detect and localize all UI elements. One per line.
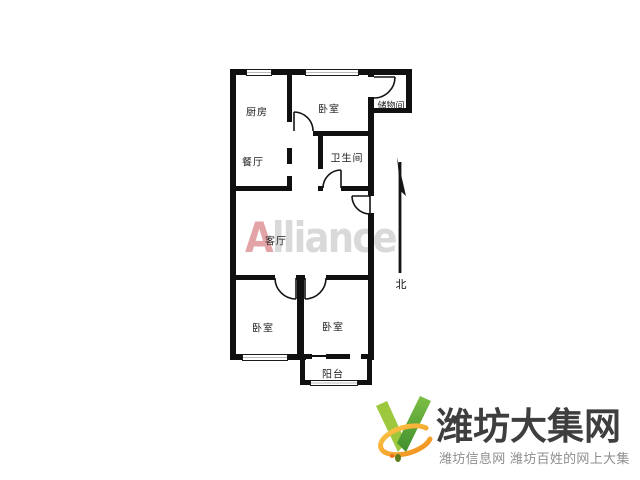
room-label-bedroom-southwest: 卧室 [252, 320, 274, 335]
room-label-bathroom: 卫生间 [331, 150, 364, 165]
door-swing-bedroom-southeast [305, 278, 326, 299]
door-swing-entry [352, 196, 370, 214]
page: Alliance [0, 0, 640, 480]
north-label: 北 [396, 276, 407, 292]
room-label-kitchen: 厨房 [246, 104, 268, 119]
door-swing-bedroom-southwest [275, 278, 296, 299]
door-swing-bathroom [323, 170, 341, 188]
room-label-bedroom-north: 卧室 [318, 101, 340, 116]
room-label-dining: 餐厅 [242, 154, 264, 169]
door-swing-bedroom-north [294, 112, 313, 131]
v-checkmark-icon [374, 394, 438, 468]
room-label-balcony: 阳台 [322, 366, 344, 381]
north-arrow-icon [397, 157, 406, 273]
room-label-living-room: 客厅 [265, 233, 287, 248]
site-title: 潍坊大集网 [436, 396, 621, 450]
door-swing-storage [374, 77, 395, 98]
room-label-storage: 储物间 [377, 99, 404, 112]
room-label-bedroom-southeast: 卧室 [322, 319, 344, 334]
site-logo: 潍坊大集网 潍坊信息网 潍坊百姓的网上大集 [374, 392, 636, 476]
site-tagline: 潍坊信息网 潍坊百姓的网上大集 [439, 448, 630, 467]
